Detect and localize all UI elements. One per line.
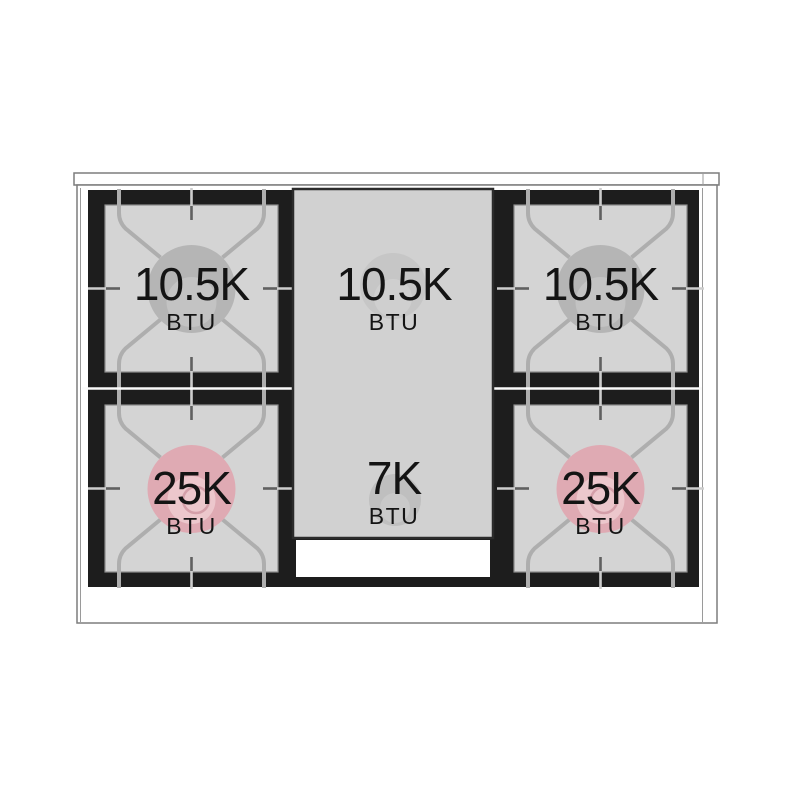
griddle-front-cutout	[296, 540, 490, 577]
cooktop-btu-diagram: 10.5K BTU 10.5K BTU 10.5K BTU 25K BTU 7K…	[0, 0, 800, 800]
cooktop-top-rim	[74, 173, 719, 185]
cooktop-graphic	[0, 0, 800, 800]
burner-cap-bottom-center	[380, 493, 410, 523]
burner-cap-top-left	[167, 277, 217, 327]
burner-cap-top-right	[576, 277, 626, 327]
burner-cap-top-center	[374, 279, 412, 317]
